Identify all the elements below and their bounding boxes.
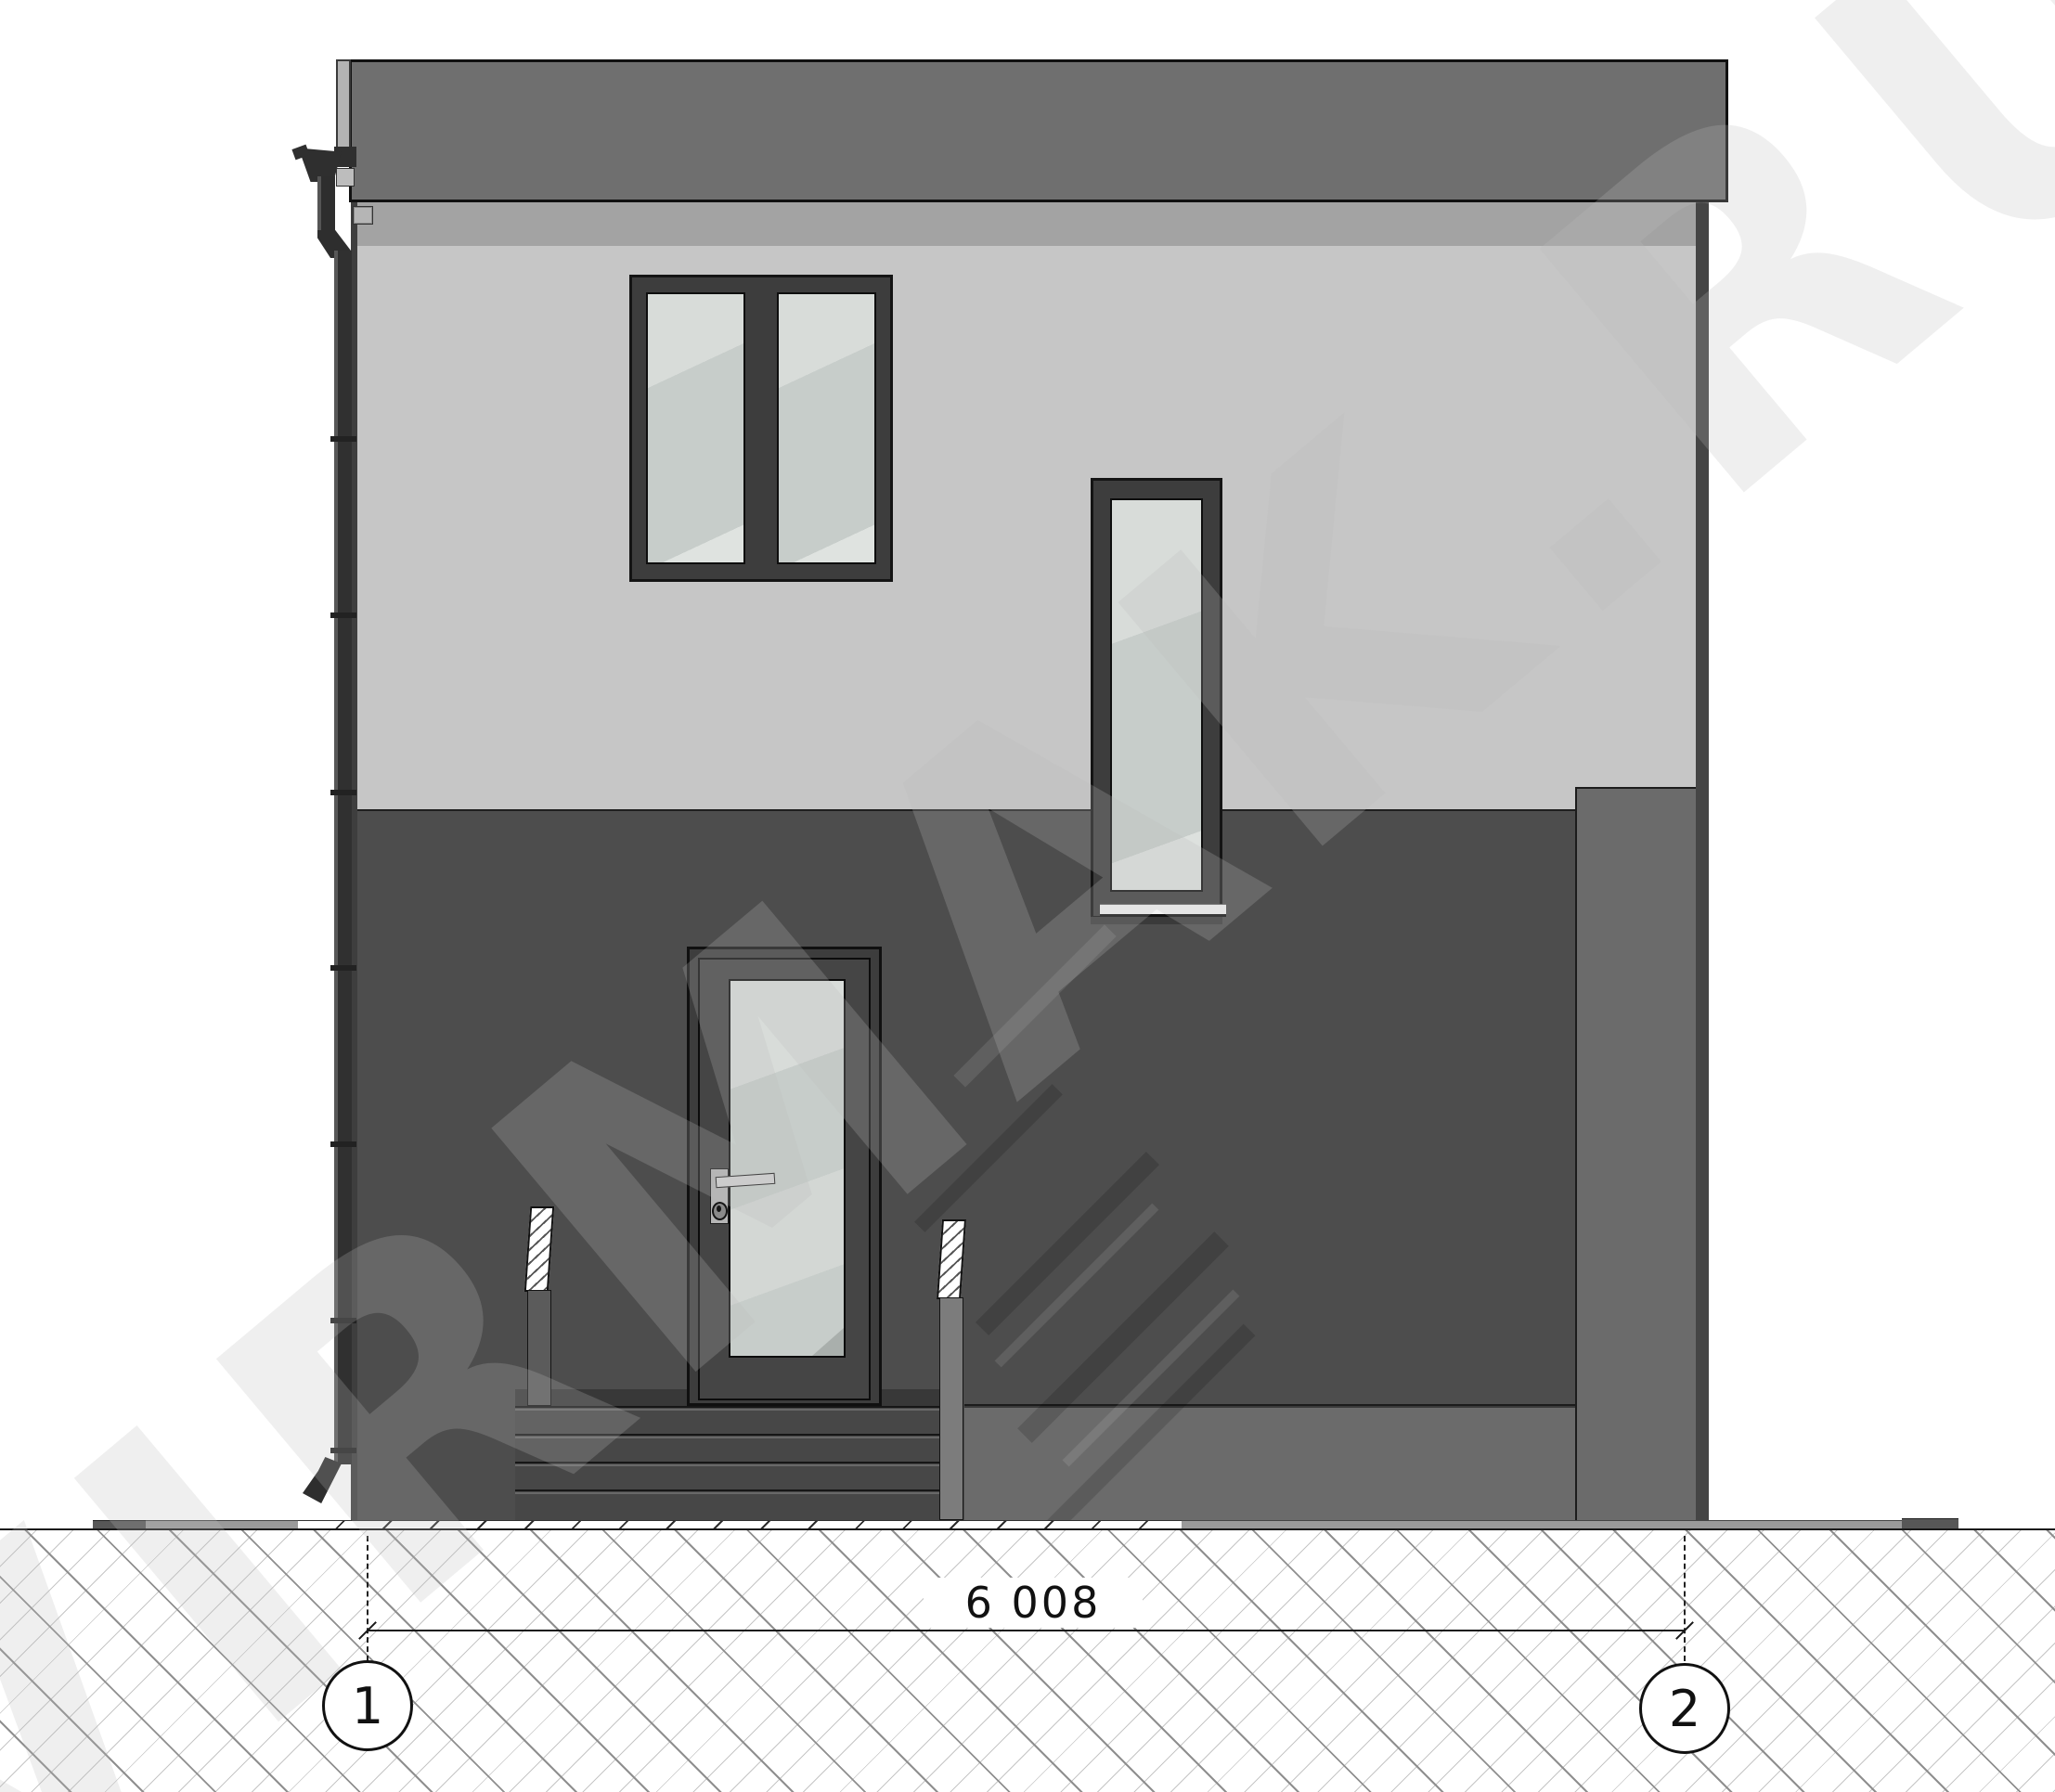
axis-1-line [367,1536,368,1661]
pipe-bracket [330,1141,356,1147]
pipe-bracket [330,965,356,971]
upper-window-left-pane [646,292,745,564]
left-post-bottom [527,1290,551,1406]
elevation-drawing: 6 008 1 2 VIRMAK.RU [0,0,2055,1792]
downspout-pipe [334,251,352,1464]
upper-window-right-pane [777,292,876,564]
door-glass [729,979,846,1358]
roof-left-return [336,59,351,150]
step-edge [515,1489,963,1491]
step-edge [515,1406,963,1408]
downspout-outlet [303,1457,342,1503]
axis-2-line [1684,1536,1686,1661]
right-plinth [964,1404,1575,1522]
pipe-bracket [330,790,356,795]
tall-window-glass [1110,498,1203,892]
ground-hatch [0,1530,2055,1792]
right-wall-section [1575,787,1698,1522]
pipe-bracket [330,436,356,442]
door-glass-shade [812,1328,844,1356]
axis-2-label: 2 [1669,1680,1700,1738]
step-edge [515,1434,963,1436]
axis-1-label: 1 [352,1677,383,1735]
dimension-line [368,1630,1685,1631]
eaves-band [353,202,1696,247]
entry-door [687,947,882,1406]
roof-fascia [349,59,1728,202]
dimension-value: 6 008 [924,1578,1143,1628]
upper-wall [353,246,1696,809]
axis-bubble-1: 1 [322,1660,413,1751]
pipe-bracket [330,1448,356,1453]
pipe-bracket [330,1318,356,1323]
upper-window [629,275,893,582]
right-post-bottom [939,1297,963,1520]
downspout-clamp [336,168,355,187]
wall-fixture-mark [353,206,373,225]
axis-bubble-2: 2 [1639,1663,1730,1754]
pipe-bracket [330,612,356,618]
right-corner-edge [1696,202,1709,1520]
door-keyhole [712,1202,728,1220]
step-edge [515,1462,963,1463]
tall-window [1091,478,1222,919]
tall-window-sill-shadow [1091,917,1222,924]
entry-steps [515,1389,963,1520]
tall-window-sill [1100,904,1226,917]
downspout-upper [317,176,335,236]
